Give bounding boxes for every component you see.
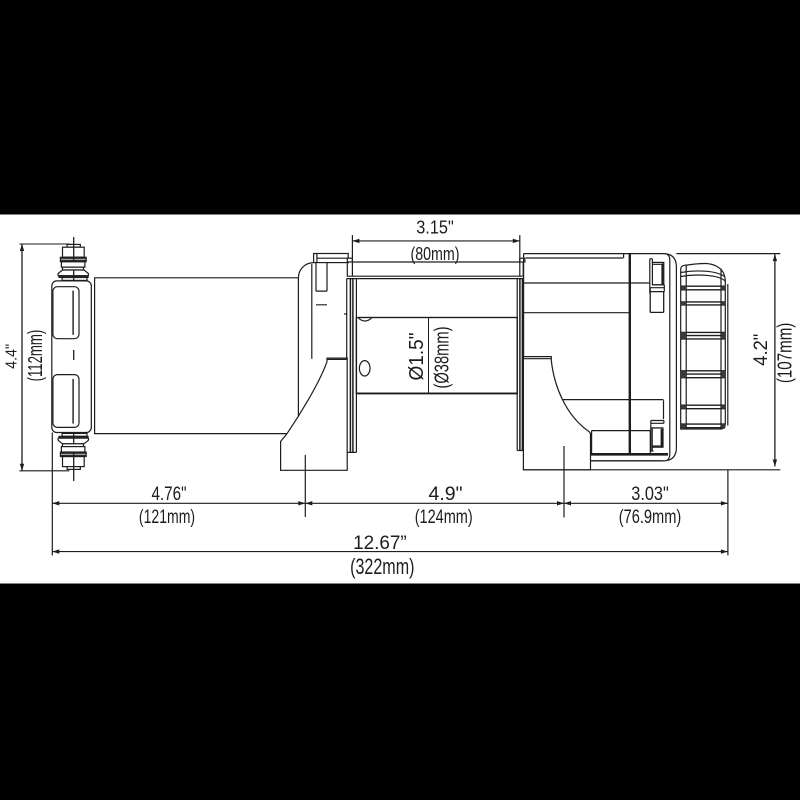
svg-text:3.03": 3.03" xyxy=(631,483,669,505)
svg-text:Ø1.5": Ø1.5" xyxy=(405,333,428,381)
svg-text:(112mm): (112mm) xyxy=(25,330,47,382)
svg-text:12.67”: 12.67” xyxy=(353,532,407,554)
svg-text:(124mm): (124mm) xyxy=(415,506,473,528)
svg-text:(Ø38mm): (Ø38mm) xyxy=(431,327,454,389)
svg-text:4.4": 4.4" xyxy=(3,344,20,369)
svg-text:(121mm): (121mm) xyxy=(139,506,195,528)
svg-text:4.2": 4.2" xyxy=(751,334,772,366)
svg-text:(76.9mm): (76.9mm) xyxy=(619,506,682,528)
svg-text:3.15": 3.15" xyxy=(416,217,454,238)
svg-text:(80mm): (80mm) xyxy=(411,243,460,264)
svg-text:(107mm): (107mm) xyxy=(775,323,797,384)
svg-text:4.76": 4.76" xyxy=(152,483,187,505)
svg-text:4.9": 4.9" xyxy=(429,483,463,505)
svg-text:(322mm): (322mm) xyxy=(350,554,414,579)
